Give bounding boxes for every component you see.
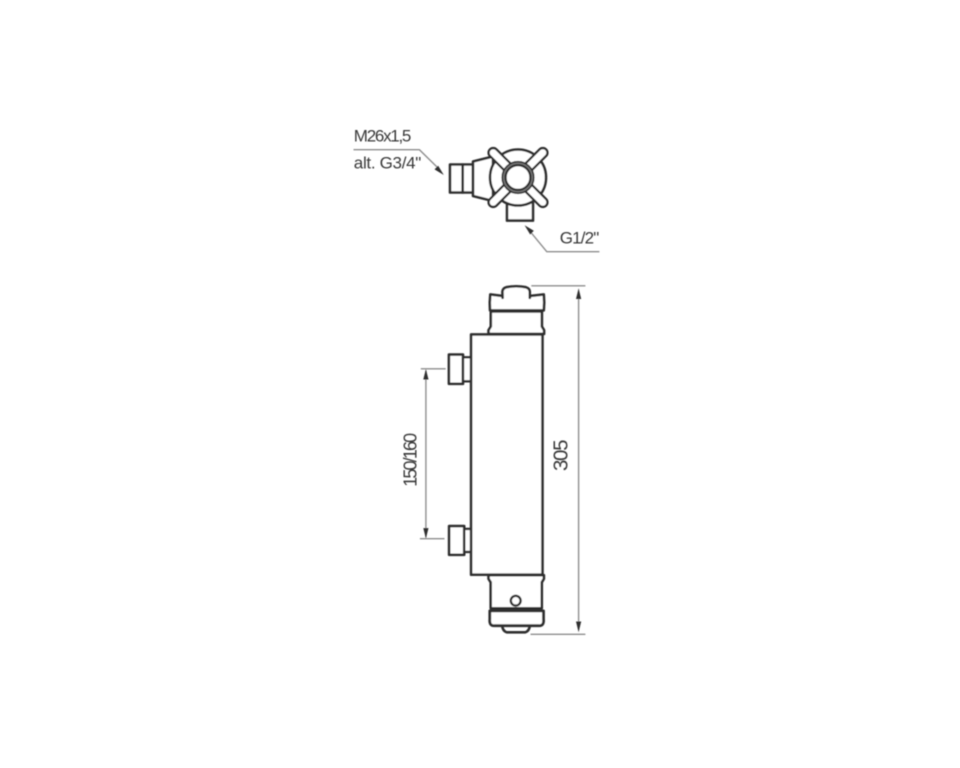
svg-text:305: 305	[549, 440, 572, 472]
svg-text:150/160: 150/160	[400, 433, 420, 487]
svg-text:alt. G3/4": alt. G3/4"	[354, 153, 422, 172]
svg-text:M26x1,5: M26x1,5	[354, 127, 412, 146]
svg-text:G1/2": G1/2"	[560, 229, 600, 248]
